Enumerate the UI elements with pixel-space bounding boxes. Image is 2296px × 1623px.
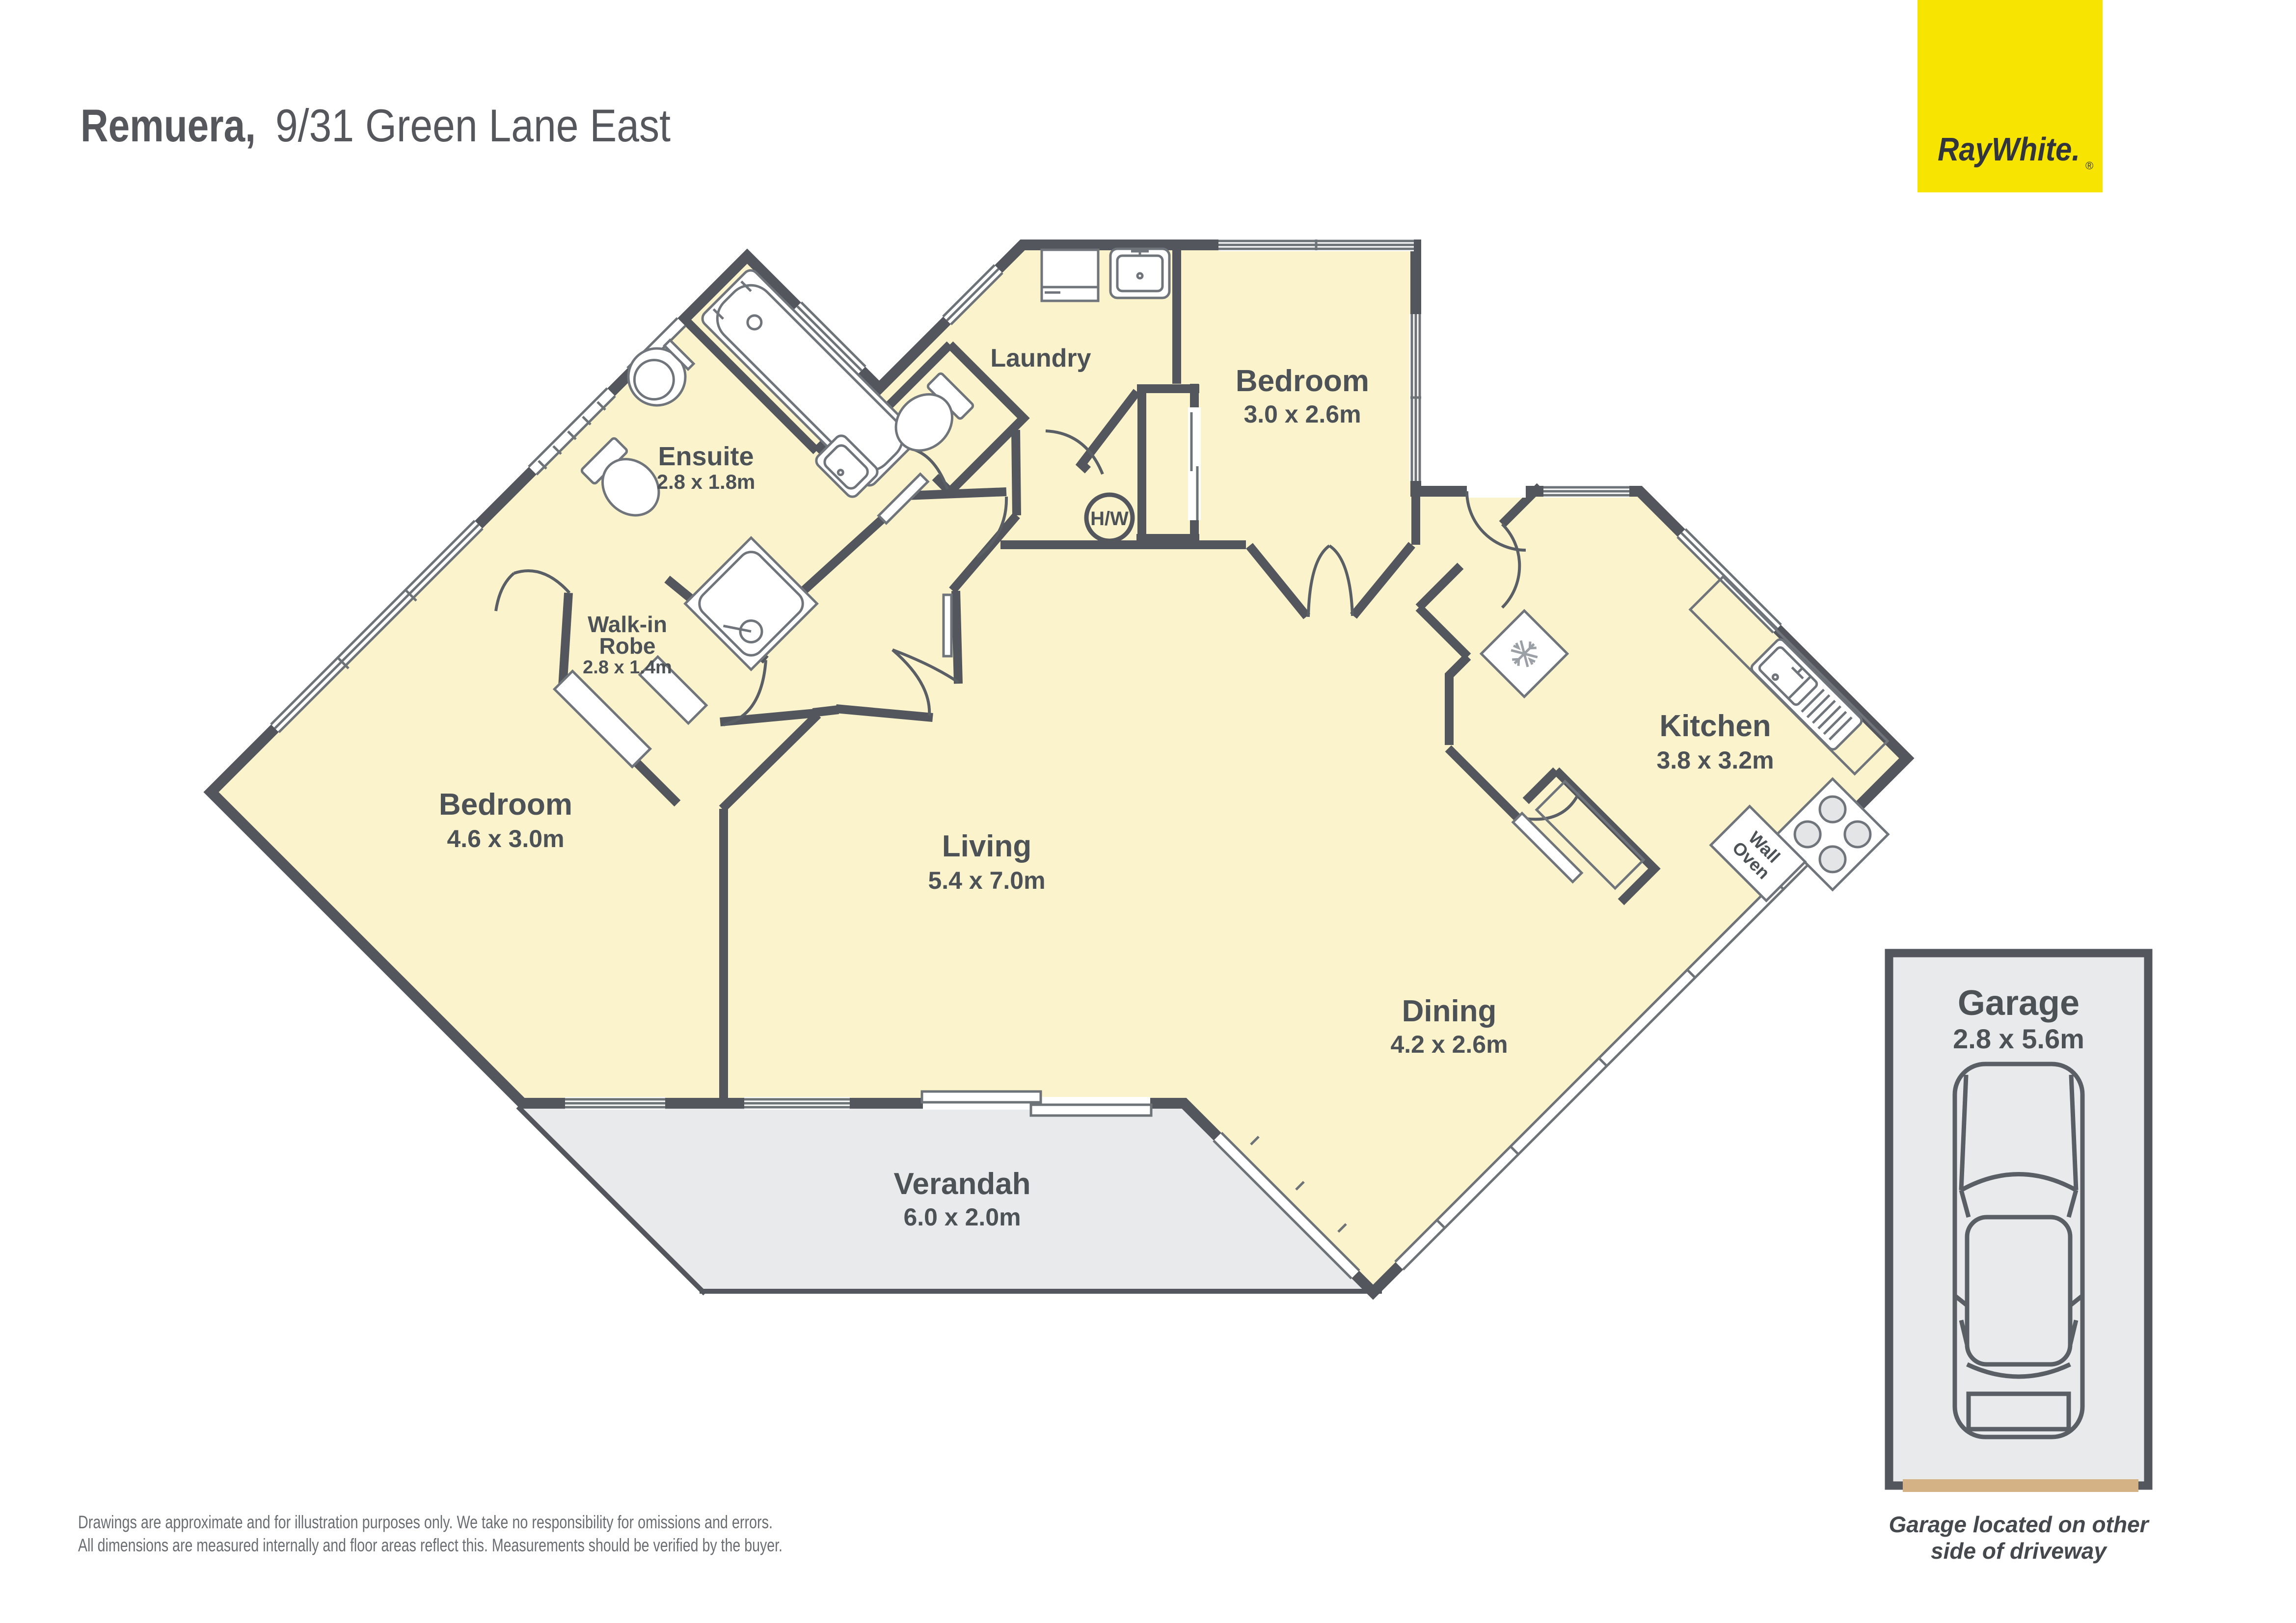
svg-text:4.6 x 3.0m: 4.6 x 3.0m — [447, 825, 564, 852]
svg-text:2.8 x 5.6m: 2.8 x 5.6m — [1953, 1023, 2084, 1054]
svg-text:3.8 x 3.2m: 3.8 x 3.2m — [1656, 746, 1774, 774]
svg-text:Verandah: Verandah — [893, 1167, 1030, 1201]
svg-text:4.2 x 2.6m: 4.2 x 2.6m — [1390, 1031, 1508, 1058]
svg-text:H/W: H/W — [1090, 508, 1129, 530]
svg-text:Dining: Dining — [1402, 994, 1497, 1028]
svg-text:Bedroom: Bedroom — [439, 788, 572, 822]
svg-text:®: ® — [2085, 160, 2093, 172]
svg-text:Drawings are approximate and f: Drawings are approximate and for illustr… — [78, 1512, 773, 1532]
svg-text:Laundry: Laundry — [990, 344, 1091, 372]
svg-text:6.0 x 2.0m: 6.0 x 2.0m — [903, 1203, 1021, 1231]
svg-text:Kitchen: Kitchen — [1659, 709, 1771, 743]
svg-text:Remuera,9/31 Green Lane East: Remuera,9/31 Green Lane East — [81, 100, 671, 151]
svg-text:side of driveway: side of driveway — [1931, 1538, 2107, 1564]
svg-text:RayWhite.: RayWhite. — [1938, 131, 2080, 168]
svg-text:Ensuite: Ensuite — [658, 442, 754, 471]
svg-text:5.4 x 7.0m: 5.4 x 7.0m — [928, 867, 1045, 894]
svg-text:3.0 x 2.6m: 3.0 x 2.6m — [1243, 400, 1361, 428]
svg-text:Garage located on other: Garage located on other — [1889, 1512, 2149, 1537]
svg-text:Robe: Robe — [599, 633, 656, 659]
svg-text:All dimensions are measured in: All dimensions are measured internally a… — [78, 1535, 783, 1555]
svg-text:2.8 x 1.4m: 2.8 x 1.4m — [583, 657, 672, 678]
svg-text:Living: Living — [942, 829, 1032, 863]
svg-text:Bedroom: Bedroom — [1236, 364, 1369, 398]
svg-text:Garage: Garage — [1958, 984, 2080, 1023]
svg-text:2.8 x 1.8m: 2.8 x 1.8m — [657, 470, 756, 493]
